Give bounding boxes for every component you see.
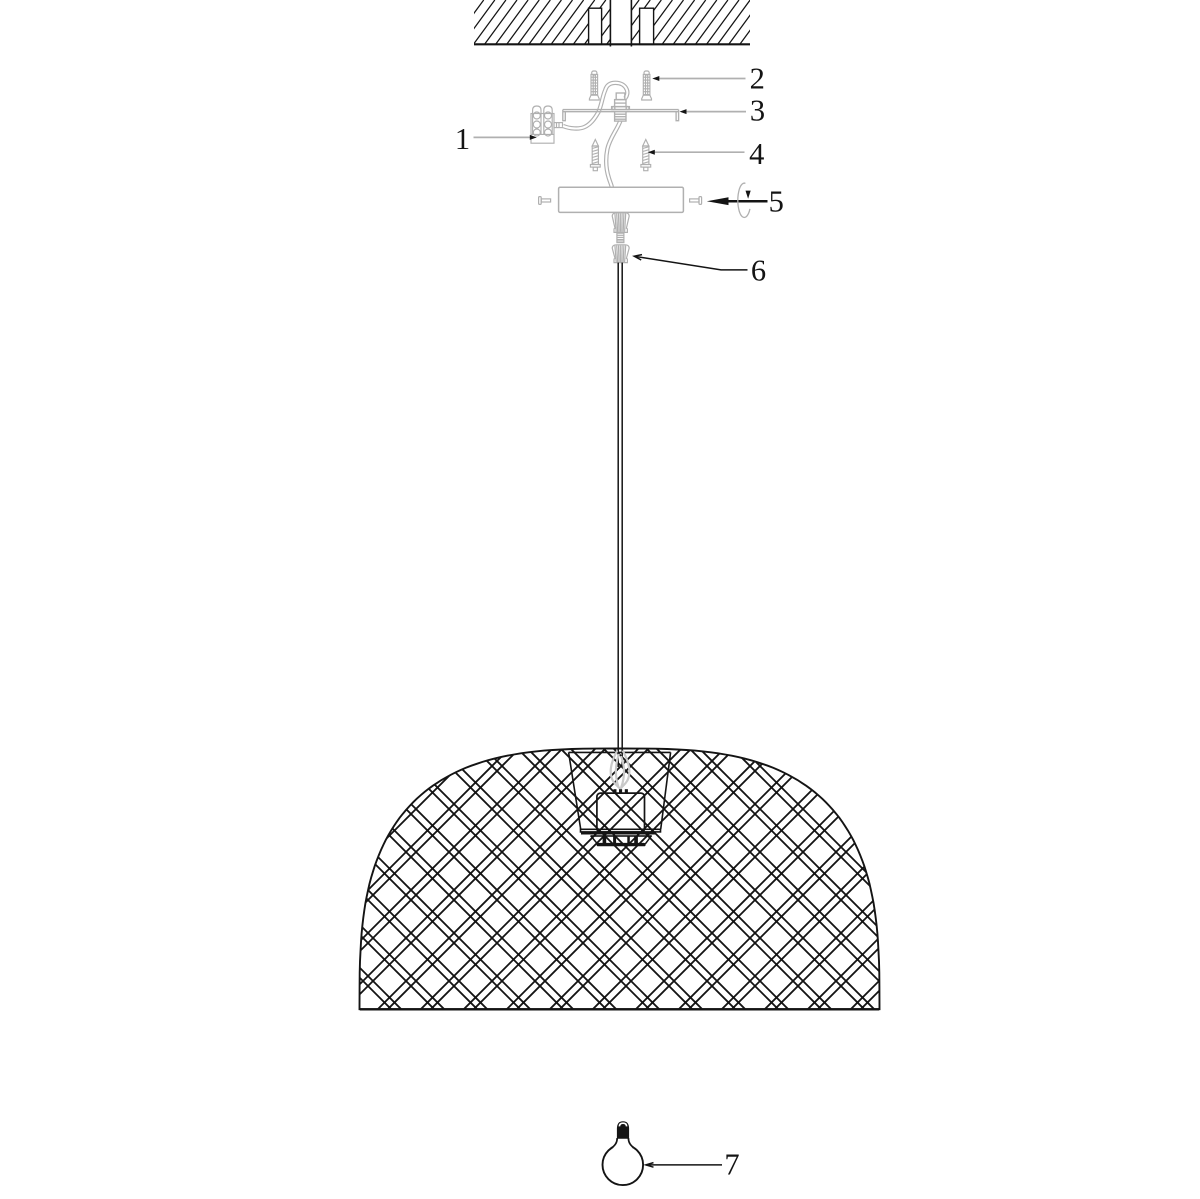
- svg-text:1: 1: [455, 122, 470, 156]
- svg-text:4: 4: [749, 137, 764, 171]
- svg-text:6: 6: [751, 253, 766, 287]
- svg-text:3: 3: [750, 94, 765, 128]
- svg-text:2: 2: [750, 62, 765, 96]
- svg-text:7: 7: [724, 1148, 739, 1182]
- svg-text:5: 5: [769, 185, 784, 219]
